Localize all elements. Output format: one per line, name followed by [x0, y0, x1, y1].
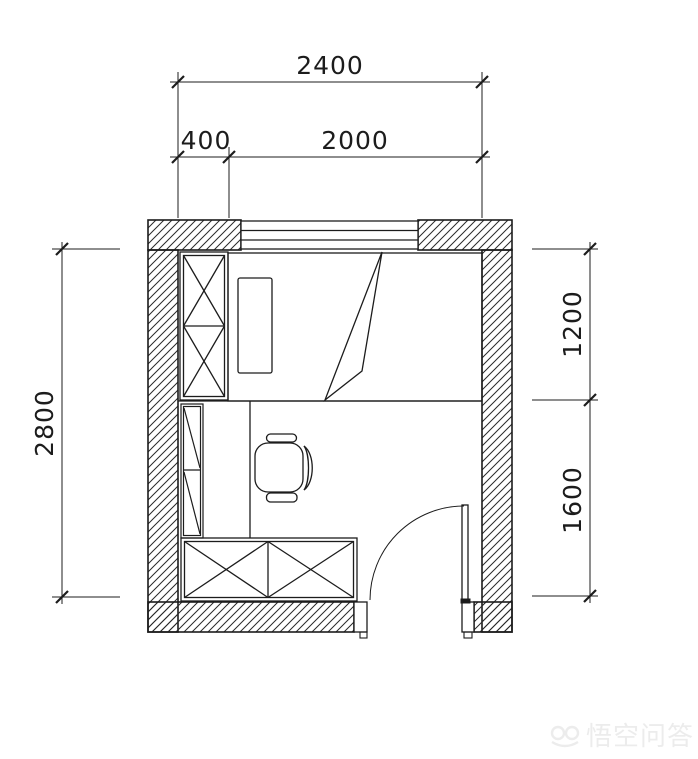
- watermark: 悟空问答: [548, 716, 694, 753]
- window: [241, 221, 418, 249]
- door: [354, 505, 474, 638]
- door-swing-arc: [370, 506, 464, 600]
- dim-label-right-lower: 1600: [558, 466, 587, 534]
- wardrobe: [180, 252, 228, 400]
- wall-top-right-block: [418, 220, 512, 250]
- floor-plan-canvas: 2400 400 2000 2800 1200 1600: [0, 0, 698, 759]
- bed-outline: [228, 253, 482, 401]
- door-jamb-right: [462, 602, 474, 632]
- wall-bottom-left: [148, 602, 354, 632]
- pillow: [238, 278, 272, 373]
- dim-label-top-left: 400: [181, 126, 232, 155]
- office-chair: [255, 434, 312, 502]
- door-hinge: [461, 599, 470, 603]
- wall-top-left-block: [148, 220, 241, 250]
- door-jamb-left-foot: [360, 632, 367, 638]
- dim-label-left-total: 2800: [30, 389, 59, 457]
- dim-label-right-upper: 1200: [558, 290, 587, 358]
- door-jamb-left: [354, 602, 367, 632]
- door-jamb-right-foot: [464, 632, 472, 638]
- wukong-monkey-logo: [548, 720, 582, 750]
- wall-bottom-right-stub: [474, 602, 512, 632]
- chair-armrest-top: [267, 434, 297, 442]
- bed: [228, 252, 482, 401]
- wall-right: [482, 250, 512, 632]
- chair-seat: [255, 443, 303, 492]
- watermark-text: 悟空问答: [586, 716, 694, 753]
- low-cabinet: [181, 538, 357, 601]
- blanket-fold: [325, 252, 382, 400]
- floor-plan-page: 2400 400 2000 2800 1200 1600 悟空问答: [0, 0, 698, 759]
- dim-label-top-total: 2400: [296, 51, 364, 80]
- bookshelf: [181, 404, 203, 538]
- dim-label-top-right: 2000: [321, 126, 389, 155]
- chair-armrest-bottom: [267, 493, 298, 502]
- wall-left: [148, 250, 178, 632]
- dim-left: [52, 242, 120, 604]
- chair-backrest: [304, 446, 309, 490]
- door-leaf: [462, 505, 468, 600]
